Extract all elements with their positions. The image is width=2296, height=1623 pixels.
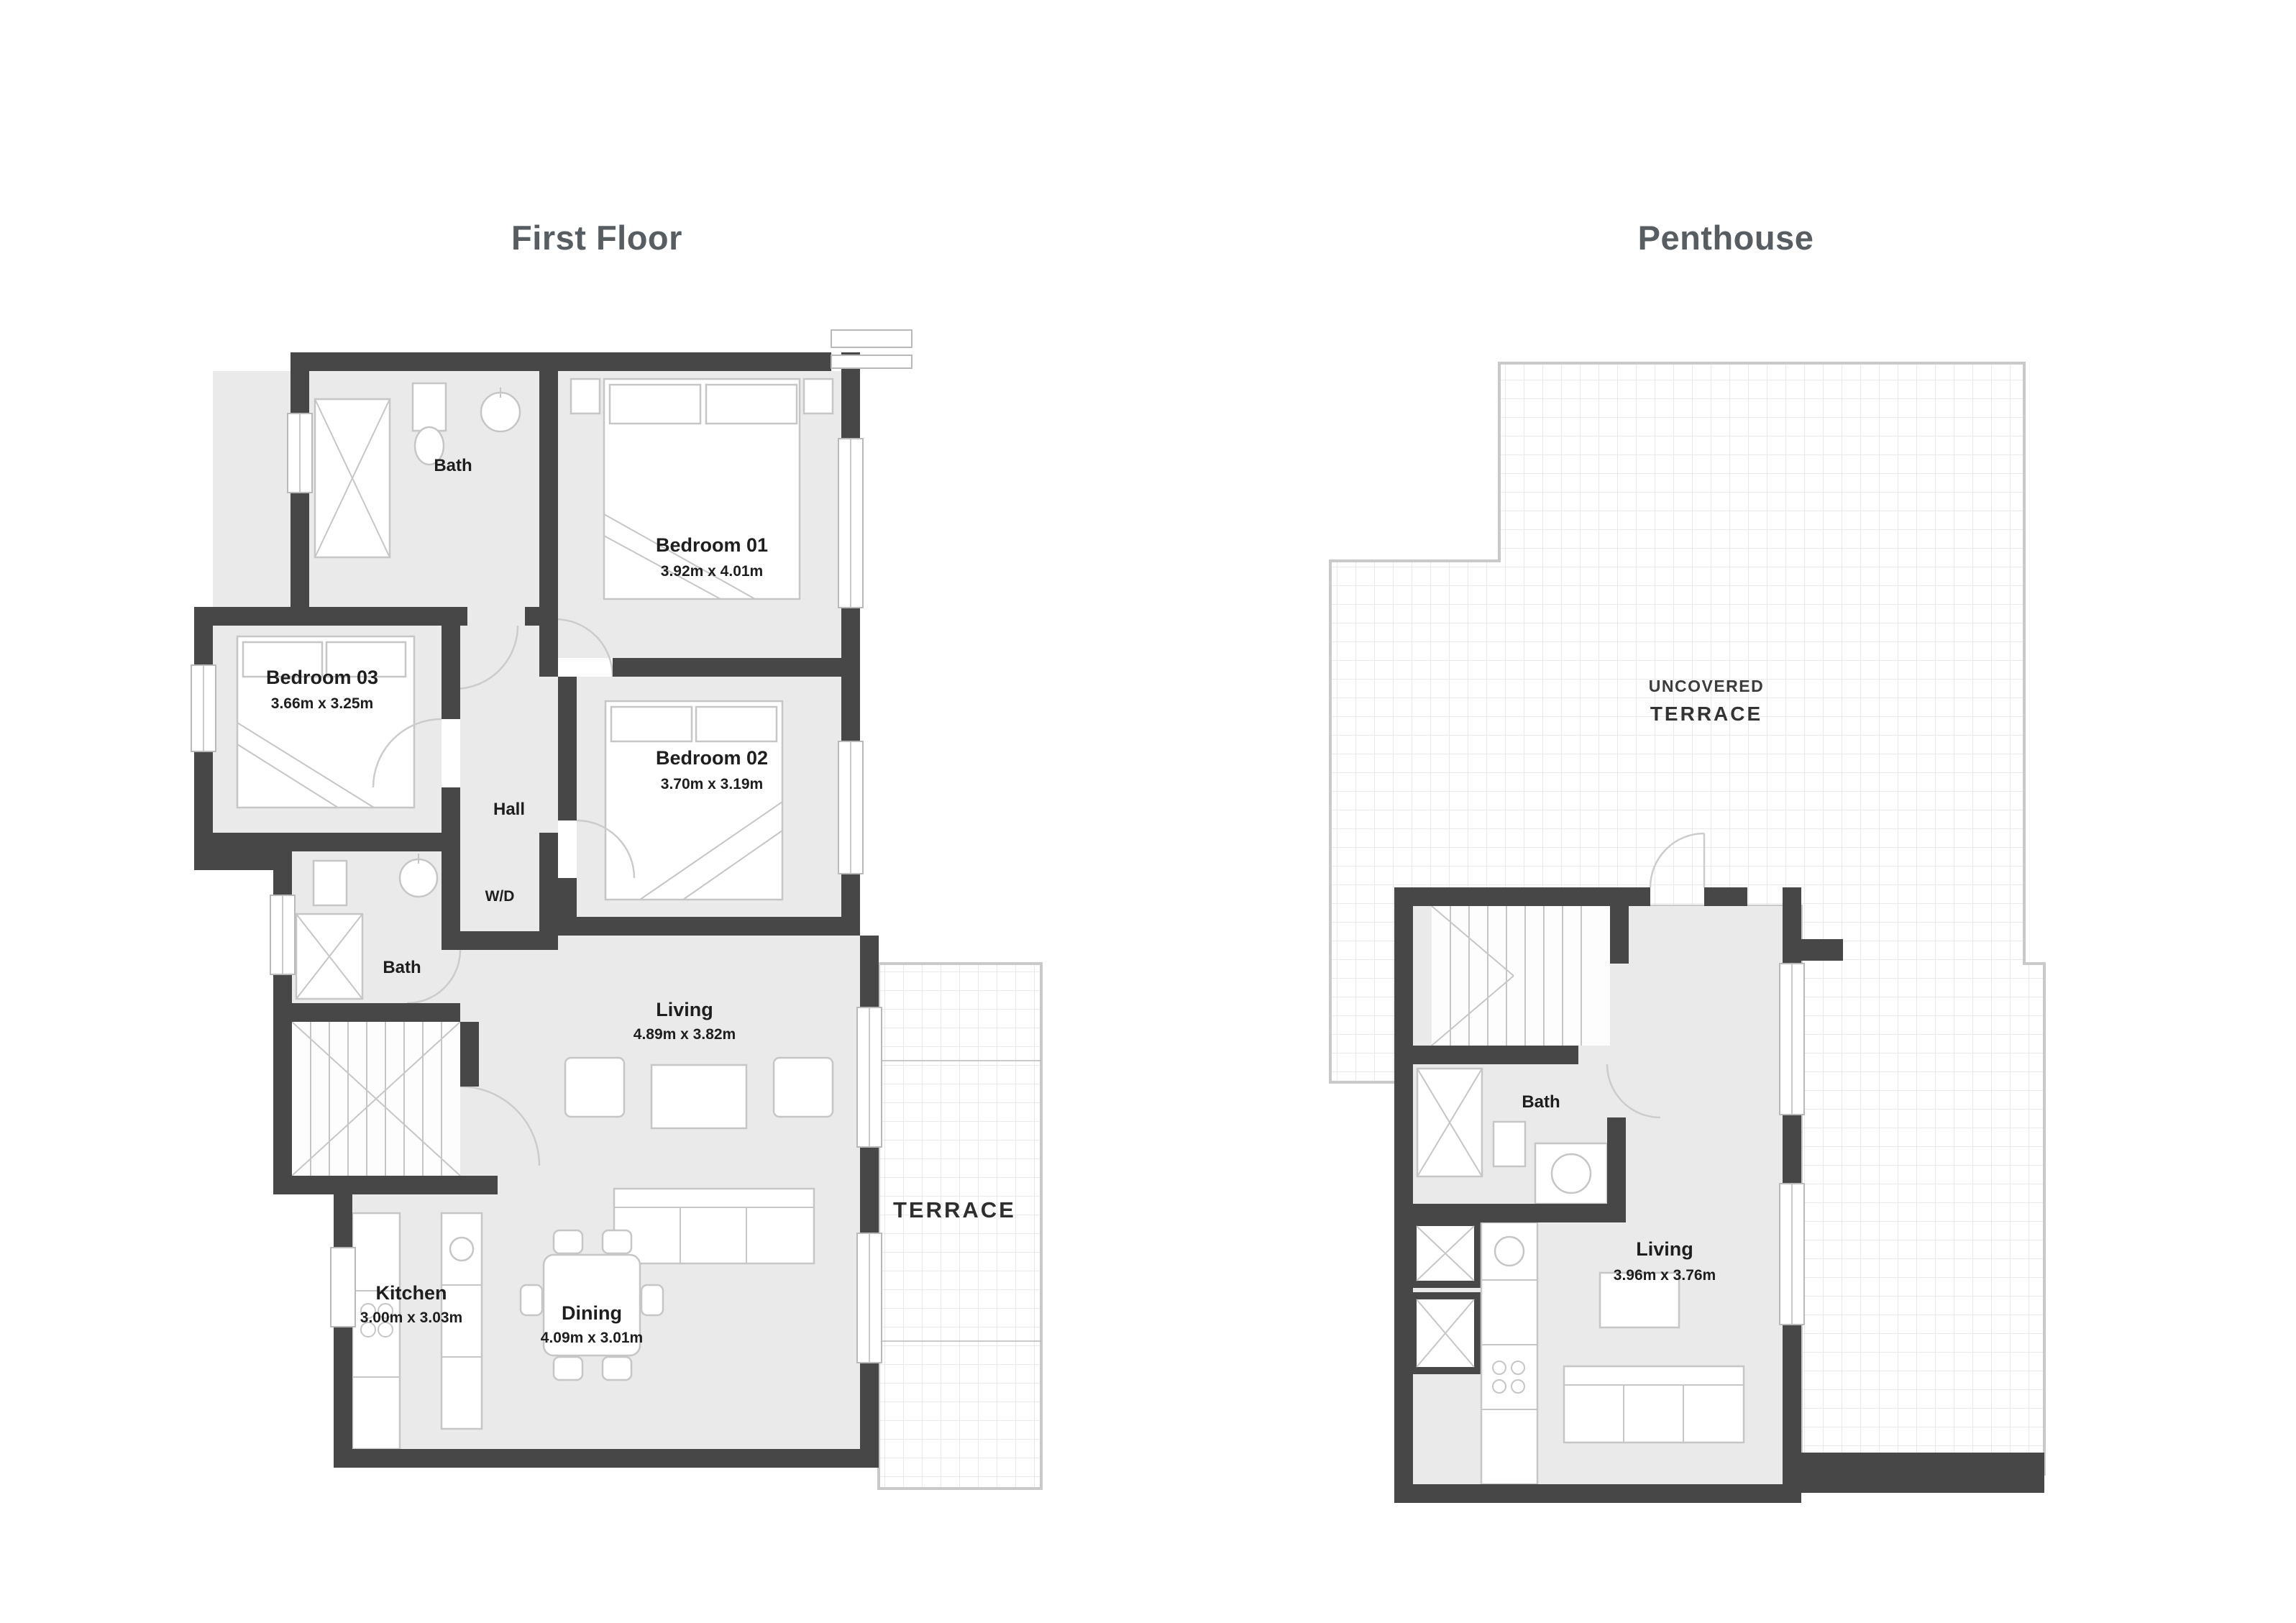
ff-terrace-area	[879, 964, 1041, 1489]
ff-wd-label: W/D	[485, 888, 515, 905]
ff-living-dims: 4.89m x 3.82m	[634, 1026, 736, 1043]
ff-bedroom01-dims: 3.92m x 4.01m	[661, 563, 763, 580]
ff-bath-mid-label: Bath	[383, 958, 421, 977]
penthouse-title: Penthouse	[1438, 218, 2013, 257]
ff-kitchen-dims: 3.00m x 3.03m	[360, 1309, 462, 1326]
ph-uncovered-label-line1: UNCOVERED	[1649, 677, 1764, 695]
ph-uncovered-label-line2: TERRACE	[1650, 703, 1762, 725]
ff-bath-top-label: Bath	[434, 456, 472, 475]
ff-terrace-label: TERRACE	[893, 1197, 1016, 1222]
ph-kitchen-fixtures	[1481, 1222, 1537, 1484]
ff-bedroom02-label: Bedroom 02	[656, 747, 768, 769]
penthouse-plan: UNCOVERED TERRACE Bath Living 3.96m x 3.…	[1262, 324, 2064, 1517]
ff-living-label: Living	[656, 999, 713, 1020]
ph-living-dims: 3.96m x 3.76m	[1614, 1267, 1716, 1284]
ff-kitchen-label: Kitchen	[375, 1282, 447, 1304]
floorplan-page: First Floor Penthouse	[0, 0, 2296, 1623]
ph-bath-label: Bath	[1522, 1092, 1560, 1112]
ff-bedroom01-label: Bedroom 01	[656, 534, 768, 556]
ff-dining-dims: 4.09m x 3.01m	[541, 1330, 643, 1346]
ff-bedroom02-bed	[605, 701, 782, 900]
ff-bedroom03-bed	[237, 636, 414, 808]
ph-stairs	[1432, 906, 1610, 1046]
ph-living-label: Living	[1636, 1238, 1693, 1260]
ff-hall-label: Hall	[493, 800, 525, 819]
ph-shaft-boxes	[1413, 1222, 1478, 1371]
ff-stairs	[292, 1022, 460, 1176]
ff-dining-label: Dining	[562, 1302, 622, 1324]
ff-bedroom03-dims: 3.66m x 3.25m	[271, 695, 373, 712]
first-floor-title: First Floor	[309, 218, 884, 257]
ff-bedroom03-label: Bedroom 03	[266, 667, 378, 688]
first-floor-plan: Bath Bedroom 01 3.92m x 4.01m Bedroom 03…	[137, 298, 1057, 1517]
ff-bedroom02-dims: 3.70m x 3.19m	[661, 776, 763, 792]
